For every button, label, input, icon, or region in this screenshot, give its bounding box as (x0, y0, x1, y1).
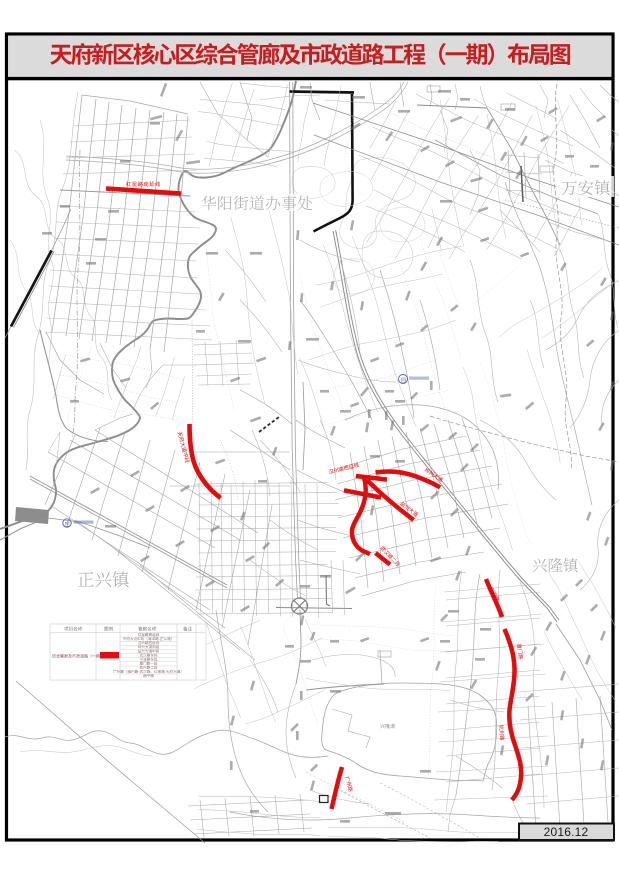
svg-text:2016.12: 2016.12 (544, 825, 589, 839)
